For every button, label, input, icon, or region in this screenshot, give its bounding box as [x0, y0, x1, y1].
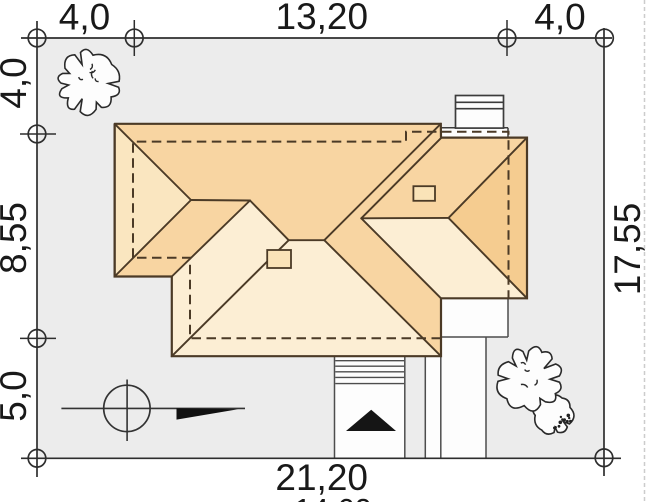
- svg-text:17,55: 17,55: [607, 203, 647, 296]
- svg-text:4,0: 4,0: [0, 57, 34, 108]
- svg-text:4,0: 4,0: [534, 0, 585, 38]
- svg-text:14,60: 14,60: [294, 492, 372, 502]
- svg-text:4,0: 4,0: [59, 0, 110, 38]
- svg-text:5,0: 5,0: [0, 370, 34, 421]
- svg-text:13,20: 13,20: [276, 0, 369, 37]
- svg-text:8,55: 8,55: [0, 202, 34, 274]
